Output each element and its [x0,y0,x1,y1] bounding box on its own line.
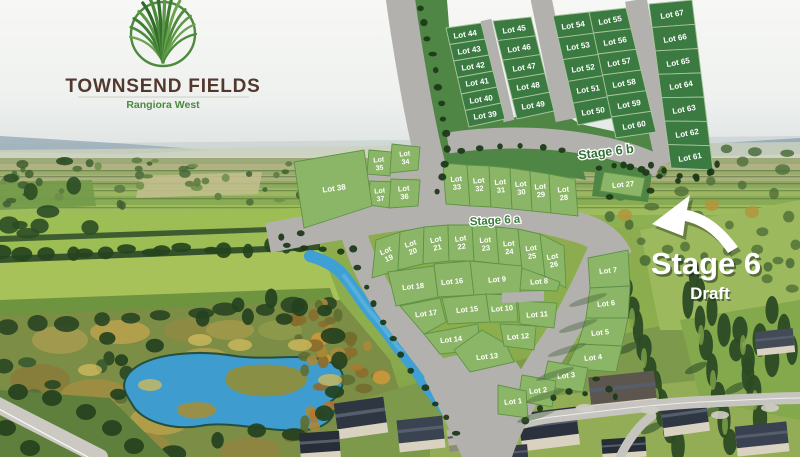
svg-text:Lot 7: Lot 7 [599,265,618,276]
svg-text:Lot 5: Lot 5 [591,327,610,338]
svg-text:Rangiora West: Rangiora West [126,99,200,111]
svg-text:Draft: Draft [690,284,730,303]
svg-text:Stage 6: Stage 6 [651,246,761,281]
svg-text:Lot 16: Lot 16 [441,276,464,287]
svg-text:TOWNSEND FIELDS: TOWNSEND FIELDS [65,76,260,97]
svg-text:Lot 10: Lot 10 [491,303,514,314]
svg-text:Lot 6: Lot 6 [597,298,616,309]
svg-text:Lot 15: Lot 15 [456,304,479,315]
svg-text:Lot 9: Lot 9 [488,274,507,284]
svg-text:Lot 12: Lot 12 [507,331,530,342]
svg-text:Lot 27: Lot 27 [612,179,635,190]
svg-text:Lot 1: Lot 1 [504,396,523,407]
svg-text:Lot 8: Lot 8 [530,276,549,286]
svg-text:Lot 11: Lot 11 [526,309,548,319]
